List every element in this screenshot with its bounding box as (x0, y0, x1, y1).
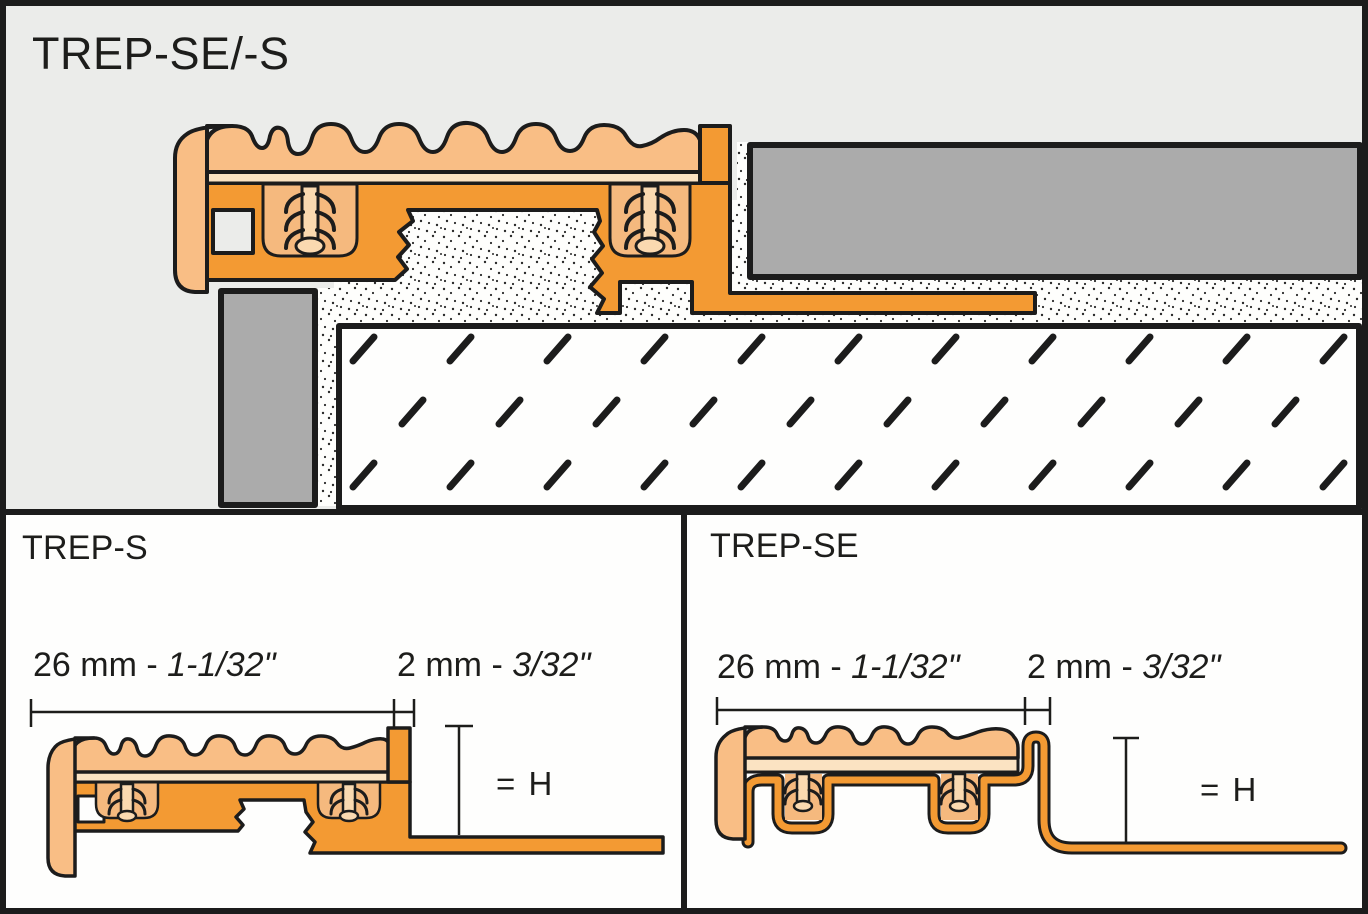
trep-s-panel: TREP-S 26 mm - 1-1/32" 2 mm - 3/32" = H (6, 515, 687, 908)
overview-title: TREP-SE/-S (32, 30, 290, 77)
substrate (339, 326, 1359, 508)
overview-drawing (6, 6, 1362, 509)
height-label: = H (1200, 773, 1258, 808)
gap-dimension-label: 2 mm - 3/32" (1027, 650, 1220, 686)
profile-edge-column (388, 728, 410, 782)
height-label: = H (496, 767, 554, 802)
tread-base-plate (744, 758, 1018, 772)
trep-s-drawing (6, 515, 681, 908)
gap-dimension-label: 2 mm - 3/32" (397, 648, 590, 684)
trep-s-title: TREP-S (22, 531, 148, 567)
trep-se-title: TREP-SE (710, 529, 859, 565)
tread-surface (744, 727, 1018, 758)
width-dimension-label: 26 mm - 1-1/32" (33, 648, 276, 684)
tread-surface (72, 736, 390, 772)
width-dimension-line (31, 699, 414, 727)
overview-panel: TREP-SE/-S (6, 6, 1362, 515)
height-reference-line (1113, 738, 1139, 842)
width-dimension-line (717, 697, 1050, 725)
height-reference-line (445, 726, 473, 835)
profile-edge-column (700, 126, 730, 183)
tread-surface (205, 123, 700, 172)
profile-chamber (213, 210, 253, 253)
width-dimension-label: 26 mm - 1-1/32" (717, 650, 960, 686)
diagram-sheet: TREP-SE/-S (0, 0, 1368, 914)
trep-se-drawing (687, 515, 1362, 908)
trep-se-panel: TREP-SE 26 mm - 1-1/32" 2 mm - 3/32" = H (687, 515, 1362, 908)
floor-tile (750, 145, 1360, 277)
riser-tile (221, 291, 315, 505)
